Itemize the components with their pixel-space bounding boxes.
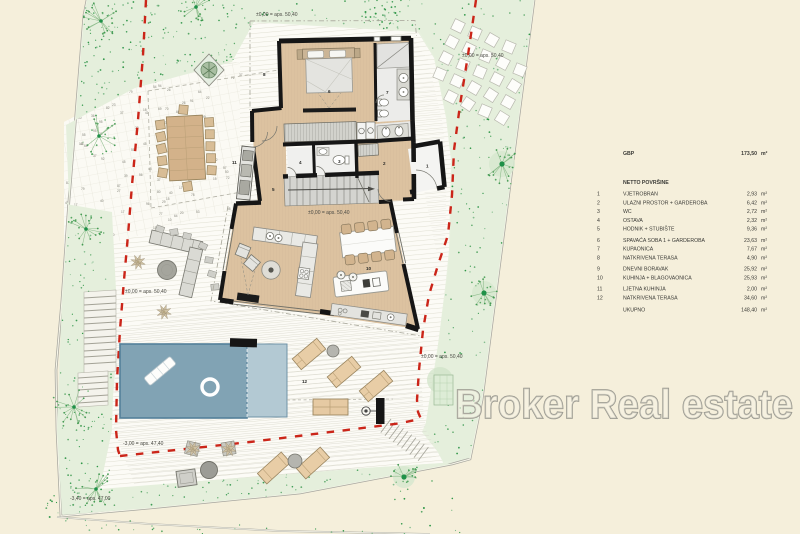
svg-text:45: 45 xyxy=(122,160,126,164)
svg-text:40: 40 xyxy=(100,199,104,203)
svg-text:92: 92 xyxy=(101,157,105,161)
svg-text:26: 26 xyxy=(167,88,171,92)
svg-text:148,40: 148,40 xyxy=(741,308,757,314)
svg-text:25,93: 25,93 xyxy=(744,276,757,282)
svg-text:23,63: 23,63 xyxy=(744,238,757,244)
svg-text:KUPAONICA: KUPAONICA xyxy=(623,247,654,253)
svg-text:m²: m² xyxy=(761,296,767,302)
svg-text:72: 72 xyxy=(226,176,230,180)
svg-text:6,42: 6,42 xyxy=(747,200,757,206)
svg-text:±0,00 = aps. 50,40: ±0,00 = aps. 50,40 xyxy=(308,210,350,216)
svg-text:80: 80 xyxy=(157,190,161,194)
svg-text:15: 15 xyxy=(213,177,217,181)
svg-text:78: 78 xyxy=(191,193,195,197)
svg-text:WC: WC xyxy=(623,209,632,215)
svg-text:17: 17 xyxy=(179,186,183,190)
svg-text:87: 87 xyxy=(117,184,121,188)
svg-text:72: 72 xyxy=(231,76,235,80)
svg-text:5: 5 xyxy=(597,227,600,233)
svg-text:±0,00 = aps. 50,40: ±0,00 = aps. 50,40 xyxy=(125,289,167,295)
svg-text:NATKRIVENA TERASA: NATKRIVENA TERASA xyxy=(623,256,678,262)
svg-text:Broker Real estate: Broker Real estate xyxy=(455,381,793,427)
svg-text:m²: m² xyxy=(761,308,767,314)
svg-text:3: 3 xyxy=(597,209,600,215)
svg-text:2: 2 xyxy=(383,161,386,166)
svg-text:17: 17 xyxy=(121,210,125,214)
svg-text:m²: m² xyxy=(761,238,767,244)
svg-text:m²: m² xyxy=(761,287,767,293)
svg-text:64: 64 xyxy=(198,90,202,94)
svg-text:40: 40 xyxy=(169,191,173,195)
svg-text:6: 6 xyxy=(328,89,331,94)
svg-text:NETTO POVRŠINE: NETTO POVRŠINE xyxy=(623,178,669,186)
svg-text:VJETROBRAN: VJETROBRAN xyxy=(623,192,658,198)
svg-text:95: 95 xyxy=(93,129,97,133)
svg-text:SPAVAĆA SOBA 1 + GARDEROBA: SPAVAĆA SOBA 1 + GARDEROBA xyxy=(623,237,706,244)
svg-text:m²: m² xyxy=(761,209,767,215)
svg-text:2,72: 2,72 xyxy=(747,209,757,215)
svg-text:27: 27 xyxy=(117,189,121,193)
svg-text:1: 1 xyxy=(426,164,429,169)
svg-text:10: 10 xyxy=(366,266,372,271)
svg-text:37: 37 xyxy=(93,154,97,158)
svg-text:DNEVNI BORAVAK: DNEVNI BORAVAK xyxy=(623,267,669,273)
svg-text:79: 79 xyxy=(81,187,85,191)
svg-text:2,93: 2,93 xyxy=(747,192,757,198)
svg-text:m²: m² xyxy=(761,200,767,206)
svg-text:±0,00 = aps. 50,40: ±0,00 = aps. 50,40 xyxy=(421,354,463,360)
svg-text:8: 8 xyxy=(597,256,600,262)
svg-text:20: 20 xyxy=(180,211,184,215)
svg-text:4: 4 xyxy=(597,218,600,224)
svg-text:ULAZNI PROSTOR + GARDEROBA: ULAZNI PROSTOR + GARDEROBA xyxy=(623,200,708,206)
svg-text:m²: m² xyxy=(761,227,767,233)
svg-text:12: 12 xyxy=(302,379,308,384)
svg-text:53: 53 xyxy=(196,210,200,214)
svg-text:26: 26 xyxy=(182,101,186,105)
svg-text:GBP: GBP xyxy=(623,151,635,157)
svg-text:22: 22 xyxy=(206,96,210,100)
svg-text:91: 91 xyxy=(190,99,194,103)
svg-text:7: 7 xyxy=(597,247,600,253)
svg-text:45: 45 xyxy=(80,142,84,146)
svg-text:3: 3 xyxy=(338,159,341,164)
svg-text:OSTAVA: OSTAVA xyxy=(623,218,643,224)
svg-text:±0,00 = aps. 50,40: ±0,00 = aps. 50,40 xyxy=(256,12,298,18)
svg-text:37: 37 xyxy=(120,111,124,115)
svg-text:69: 69 xyxy=(158,107,162,111)
svg-text:5: 5 xyxy=(272,187,275,192)
svg-text:70: 70 xyxy=(165,107,169,111)
svg-text:m²: m² xyxy=(761,267,767,273)
svg-text:77: 77 xyxy=(159,212,163,216)
svg-text:29: 29 xyxy=(162,200,166,204)
svg-text:2,00: 2,00 xyxy=(747,287,757,293)
svg-text:54: 54 xyxy=(153,85,157,89)
svg-text:18: 18 xyxy=(143,108,147,112)
svg-text:LJETNA KUHINJA: LJETNA KUHINJA xyxy=(623,287,666,293)
svg-text:39: 39 xyxy=(124,174,128,178)
svg-text:82: 82 xyxy=(106,106,110,110)
svg-text:55: 55 xyxy=(82,133,86,137)
svg-text:37: 37 xyxy=(157,178,161,182)
svg-text:m²: m² xyxy=(761,151,768,157)
svg-text:94: 94 xyxy=(158,84,162,88)
svg-text:12: 12 xyxy=(597,296,603,302)
svg-text:NATKRIVENA TERASA: NATKRIVENA TERASA xyxy=(623,296,678,302)
svg-text:2,32: 2,32 xyxy=(747,218,757,224)
svg-text:95: 95 xyxy=(99,120,103,124)
svg-text:10: 10 xyxy=(597,276,603,282)
svg-text:10: 10 xyxy=(168,218,172,222)
svg-text:4: 4 xyxy=(299,160,302,165)
svg-text:11: 11 xyxy=(597,287,602,293)
svg-text:15: 15 xyxy=(166,197,170,201)
svg-text:50: 50 xyxy=(225,170,229,174)
svg-text:45: 45 xyxy=(143,142,147,146)
svg-text:23: 23 xyxy=(112,103,116,107)
svg-text:m²: m² xyxy=(761,247,767,253)
svg-text:2: 2 xyxy=(597,200,600,206)
svg-text:m²: m² xyxy=(761,218,767,224)
svg-text:57: 57 xyxy=(223,166,227,170)
svg-text:m²: m² xyxy=(761,256,767,262)
svg-text:4,90: 4,90 xyxy=(747,256,757,262)
svg-text:173,50: 173,50 xyxy=(741,151,757,157)
svg-text:8: 8 xyxy=(263,72,266,77)
svg-text:56: 56 xyxy=(139,173,143,177)
svg-text:34,60: 34,60 xyxy=(744,296,757,302)
svg-text:11: 11 xyxy=(232,160,237,165)
svg-text:64: 64 xyxy=(174,214,178,218)
svg-text:7,67: 7,67 xyxy=(747,247,757,253)
svg-text:25,92: 25,92 xyxy=(744,267,757,273)
svg-text:7: 7 xyxy=(386,90,389,95)
svg-text:36: 36 xyxy=(91,114,95,118)
svg-text:9,36: 9,36 xyxy=(747,227,757,233)
svg-text:m²: m² xyxy=(761,192,767,198)
svg-text:6: 6 xyxy=(597,238,600,244)
svg-text:KUHINJA + BLAGOVAONICA: KUHINJA + BLAGOVAONICA xyxy=(623,276,692,282)
svg-text:HODNIK + STUBIŠTE: HODNIK + STUBIŠTE xyxy=(623,226,675,233)
svg-text:UKUPNO: UKUPNO xyxy=(623,308,645,314)
svg-text:1: 1 xyxy=(597,192,600,198)
svg-text:m²: m² xyxy=(761,276,767,282)
svg-text:96: 96 xyxy=(146,202,150,206)
svg-text:±0,00 = aps. 50,40: ±0,00 = aps. 50,40 xyxy=(462,53,504,59)
svg-text:9: 9 xyxy=(597,267,600,273)
svg-text:-3,40 = aps. 47,00: -3,40 = aps. 47,00 xyxy=(70,496,111,502)
svg-text:-3,00 = aps. 47,40: -3,00 = aps. 47,40 xyxy=(123,441,164,447)
